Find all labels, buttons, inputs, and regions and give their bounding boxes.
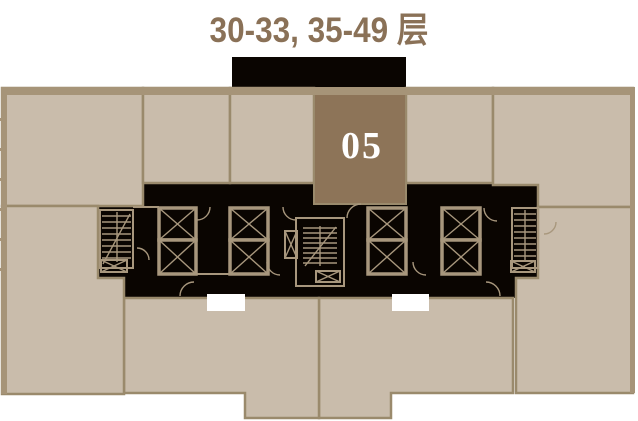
left-notch [0,148,3,151]
unit-05-label: 05 [341,125,383,167]
elevator-bank-3 [368,208,406,274]
light-well-opening [207,294,245,311]
unit-top-2[interactable] [143,88,230,183]
left-notch [0,268,3,271]
right-border-band [630,88,635,393]
top-border-band [2,87,635,95]
unit-bottom-center-left[interactable] [124,298,319,418]
elevator-bank-1 [159,208,196,274]
unit-top-5[interactable] [406,88,493,183]
elevator-bank-4 [442,208,480,274]
light-well-opening [392,294,429,311]
unit-bottom-center-right[interactable] [319,298,513,418]
floor-plan: 05 [0,0,638,421]
floor-plan-page: 30-33, 35-49 层 05 [0,0,638,421]
left-notch [0,178,3,181]
elevator-bank-2 [230,208,268,274]
left-notch [0,118,3,121]
left-notch [0,208,3,211]
roof-protrusion [232,57,406,90]
left-notch [0,238,3,241]
unit-top-left[interactable] [2,88,143,206]
unit-top-3[interactable] [230,88,314,183]
